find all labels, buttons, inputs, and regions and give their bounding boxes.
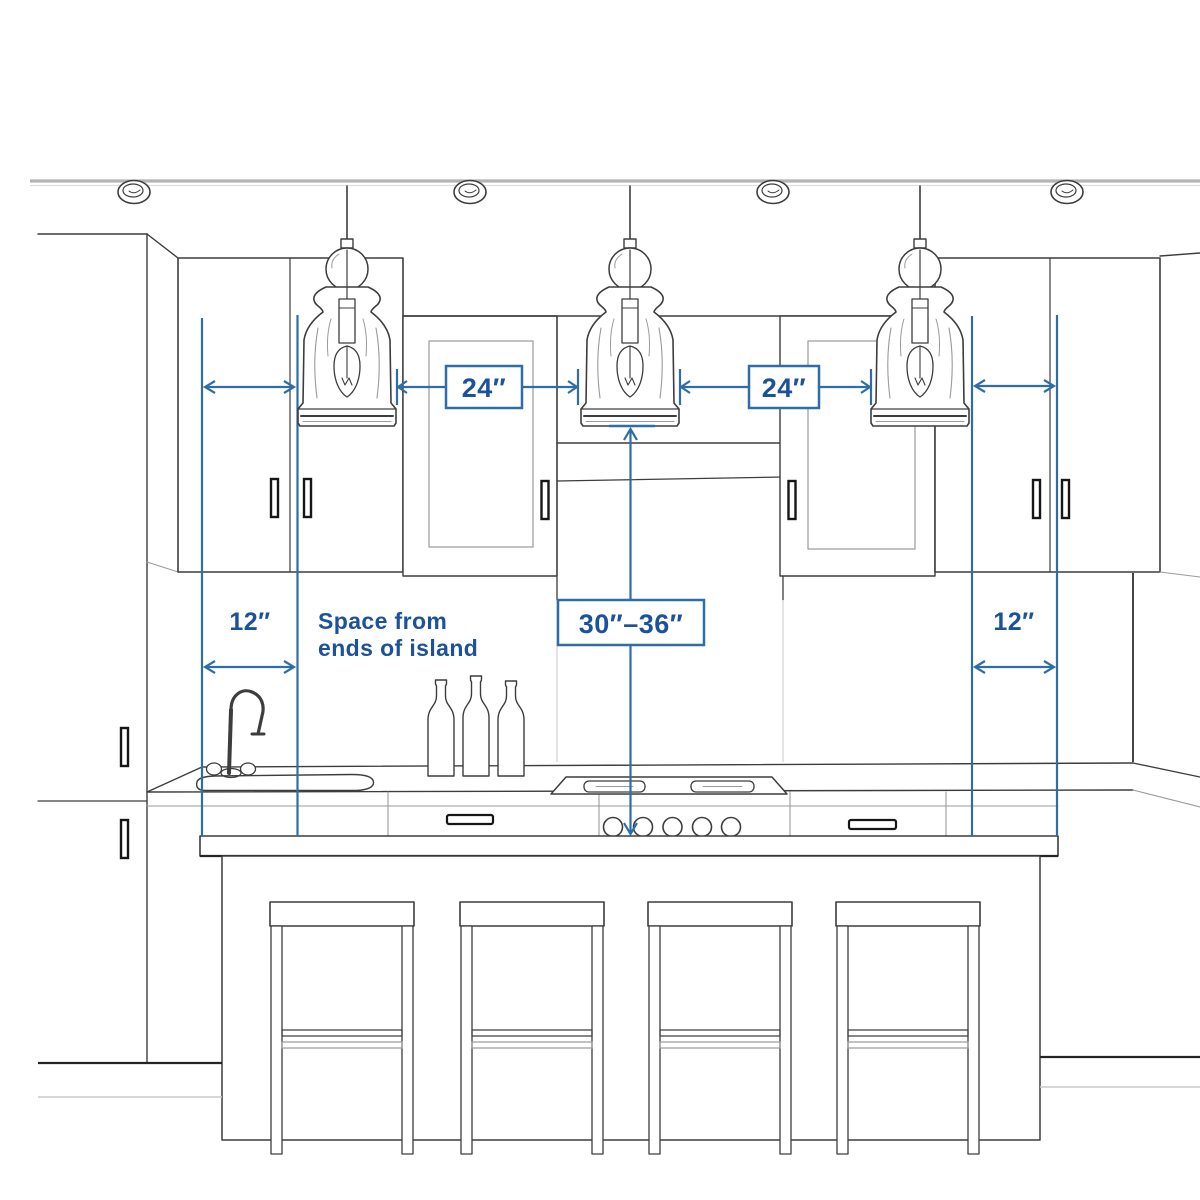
wine-bottles-icon bbox=[428, 676, 524, 776]
cabinet-handle-icon bbox=[1033, 480, 1040, 518]
dimension-label-height: 30″–36″ bbox=[579, 609, 683, 639]
cooktop-knobs bbox=[604, 818, 741, 837]
dimension-label-12-left: 12″ bbox=[229, 608, 270, 636]
note-space-from-ends: Space from ends of island bbox=[318, 608, 478, 661]
cabinet-handle-icon bbox=[121, 820, 128, 858]
cabinet-handle-icon bbox=[304, 479, 311, 517]
dimension-label-24-right: 24″ bbox=[762, 373, 806, 403]
cabinet-handle-icon bbox=[542, 481, 549, 519]
note-line-1: Space from bbox=[318, 608, 447, 634]
drawer-handle-icon bbox=[849, 820, 896, 829]
diagram-canvas: 12″ 12″ 24″ 24″ bbox=[0, 0, 1200, 1200]
sink bbox=[197, 775, 374, 791]
note-line-2: ends of island bbox=[318, 635, 478, 661]
cabinet-handle-icon bbox=[121, 728, 128, 766]
cabinet-handle-icon bbox=[789, 481, 796, 519]
left-wall bbox=[38, 234, 178, 1063]
kitchen-island bbox=[200, 836, 1058, 1140]
faucet-icon bbox=[207, 691, 265, 778]
dimension-label-24-left: 24″ bbox=[462, 373, 506, 403]
cabinet-handle-icon bbox=[1062, 480, 1069, 518]
cabinet-handle-icon bbox=[271, 479, 278, 517]
ceiling-line bbox=[30, 181, 1200, 186]
dimension-label-12-right: 12″ bbox=[993, 608, 1034, 636]
dimension-height: 30″–36″ bbox=[558, 426, 704, 834]
drawer-handle-icon bbox=[447, 815, 493, 824]
recessed-light-icon bbox=[118, 181, 1083, 204]
wall-cabinet-mid-left bbox=[403, 316, 557, 576]
kitchen-lighting-diagram: 12″ 12″ 24″ 24″ bbox=[0, 0, 1200, 1200]
cooktop bbox=[551, 777, 787, 837]
base-cabinet-left bbox=[121, 728, 128, 858]
